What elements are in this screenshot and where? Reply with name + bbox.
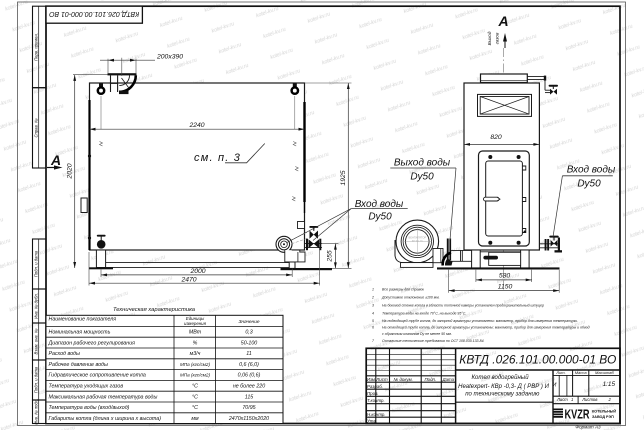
svg-text:%: % xyxy=(193,340,198,346)
svg-text:Изм.: Изм. xyxy=(367,377,376,382)
svg-text:м3/ч: м3/ч xyxy=(190,351,201,357)
svg-text:Диапазон рабочего регулировани: Диапазон рабочего регулирования xyxy=(48,340,136,346)
svg-text:КВТД .026.101.00.000-01 ВО: КВТД .026.101.00.000-01 ВО xyxy=(459,353,616,367)
svg-text:Масштаб: Масштаб xyxy=(595,370,614,375)
svg-text:Дата: Дата xyxy=(442,377,455,382)
svg-text:А: А xyxy=(497,13,508,29)
svg-text:1: 1 xyxy=(372,288,374,292)
svg-text:ВР 80-75: ВР 80-75 xyxy=(412,239,423,243)
svg-text:1: 1 xyxy=(571,397,573,402)
svg-text:4: 4 xyxy=(372,312,374,316)
svg-text:KVZR: KVZR xyxy=(565,407,590,422)
svg-text:°С: °С xyxy=(192,405,198,411)
svg-text:0,6 (6,0): 0,6 (6,0) xyxy=(239,362,259,368)
svg-text:Dy50: Dy50 xyxy=(410,172,434,183)
svg-text:255: 255 xyxy=(327,250,334,263)
svg-text:Вход воды: Вход воды xyxy=(567,165,616,176)
svg-text:50-100: 50-100 xyxy=(241,340,258,346)
svg-text:820: 820 xyxy=(490,134,502,141)
svg-text:Лит.: Лит. xyxy=(555,370,565,375)
svg-text:Все размеры для справок: Все размеры для справок xyxy=(382,288,424,292)
svg-text:КВТД.026.101.00.000-01 ВО: КВТД.026.101.00.000-01 ВО xyxy=(49,10,139,19)
svg-text:Допустимое отклонение ±100 мм: Допустимое отклонение ±100 мм. xyxy=(381,295,440,299)
svg-text:см. п. 3: см. п. 3 xyxy=(194,152,241,164)
svg-text:ЗАВОД РЭП: ЗАВОД РЭП xyxy=(592,415,614,419)
svg-text:Значение: Значение xyxy=(238,319,259,325)
svg-text:2470х1150х2020: 2470х1150х2020 xyxy=(228,416,269,422)
svg-text:Пров.: Пров. xyxy=(367,391,379,396)
svg-text:газов: газов xyxy=(495,32,500,44)
svg-text:115: 115 xyxy=(245,394,253,400)
svg-text:МПа (кгс/см2): МПа (кгс/см2) xyxy=(180,362,210,367)
svg-text:°С: °С xyxy=(192,394,198,400)
svg-text:1150: 1150 xyxy=(498,283,513,290)
svg-text:Т.контр.: Т.контр. xyxy=(367,398,385,403)
svg-text:Температура воды на входе 70°: Температура воды на входе 70°С, на выход… xyxy=(382,312,466,316)
svg-text:580: 580 xyxy=(499,273,511,280)
svg-text:1:15: 1:15 xyxy=(603,381,616,388)
svg-text:Взам. инв. №: Взам. инв. № xyxy=(33,328,38,354)
svg-text:2470: 2470 xyxy=(180,276,196,283)
svg-text:Формат А3: Формат А3 xyxy=(575,425,601,430)
svg-text:№ докум.: № докум. xyxy=(394,377,413,382)
svg-text:Номинальная мощность: Номинальная мощность xyxy=(49,330,111,336)
svg-text:КОТЕЛЬНЫЙ: КОТЕЛЬНЫЙ xyxy=(592,410,616,414)
svg-text:0,06 (0,6): 0,06 (0,6) xyxy=(238,373,261,379)
svg-text:70/95: 70/95 xyxy=(242,405,255,411)
svg-text:Разраб.: Разраб. xyxy=(367,384,383,389)
svg-text:Гидравлическое сопротивление к: Гидравлическое сопротивление котла xyxy=(49,373,146,379)
svg-text:Выход воды: Выход воды xyxy=(394,158,451,169)
svg-text:измерения: измерения xyxy=(184,321,207,326)
svg-text:Наименование показателя: Наименование показателя xyxy=(49,317,117,323)
svg-text:Техническая характеристика: Техническая характеристика xyxy=(113,307,196,313)
svg-text:Подп. и дата: Подп. и дата xyxy=(33,366,38,393)
svg-text:На боковой стенке котла в обла: На боковой стенке котла в области топочн… xyxy=(382,304,544,308)
svg-text:с обратным клапаном Dу не мен: с обратным клапаном Dу не менее 50 мм. xyxy=(382,332,452,336)
svg-text:Масса: Масса xyxy=(575,370,588,375)
svg-text:Dy50: Dy50 xyxy=(577,179,601,190)
svg-text:Лист: Лист xyxy=(375,377,388,382)
svg-text:200х390: 200х390 xyxy=(156,54,183,61)
svg-text:Справ. №: Справ. № xyxy=(33,118,38,137)
svg-text:Рабочее давление воды: Рабочее давление воды xyxy=(49,362,108,368)
svg-text:Котел водогрейный: Котел водогрейный xyxy=(471,374,529,381)
svg-text:Подп.: Подп. xyxy=(425,377,437,382)
svg-text:Инв. № дубл.: Инв. № дубл. xyxy=(33,293,38,319)
svg-text:по техническому заданию: по техническому заданию xyxy=(465,392,540,398)
svg-text:МВт: МВт xyxy=(189,330,202,336)
svg-text:На подводящей трубе котла, до: На подводящей трубе котла, до запорной а… xyxy=(382,319,578,323)
svg-text:Температура воды (вход/выход): Температура воды (вход/выход) xyxy=(49,405,130,411)
svg-text:0,3: 0,3 xyxy=(245,330,252,336)
svg-text:5: 5 xyxy=(372,319,374,323)
svg-text:3: 3 xyxy=(372,304,374,308)
svg-text:Н.контр.: Н.контр. xyxy=(367,412,386,417)
svg-text:Heatexpert- КВр -0,3- Д ( РВР: Heatexpert- КВр -0,3- Д ( РВР ) И xyxy=(458,384,549,390)
svg-text:Остальные технические требован: Остальные технические требования по ОСТ … xyxy=(382,339,485,343)
svg-text:мм: мм xyxy=(191,416,199,422)
svg-text:Инв. № подл.: Инв. № подл. xyxy=(33,399,38,425)
svg-text:Максимальная рабочая температу: Максимальная рабочая температура воды xyxy=(49,394,158,400)
svg-text:2020: 2020 xyxy=(67,163,74,179)
svg-text:1925: 1925 xyxy=(340,170,347,185)
svg-text:МПа (кгс/см2): МПа (кгс/см2) xyxy=(180,373,210,378)
svg-text:°С: °С xyxy=(192,384,198,390)
svg-text:На отводящей трубе котла, до з: На отводящей трубе котла, до запорной ар… xyxy=(382,326,590,330)
svg-text:Расход воды: Расход воды xyxy=(49,351,80,357)
svg-text:2: 2 xyxy=(371,295,374,299)
svg-text:Выход: Выход xyxy=(487,31,492,45)
svg-text:Подп. и дата: Подп. и дата xyxy=(33,250,38,277)
svg-text:Перв. примен.: Перв. примен. xyxy=(33,33,38,61)
svg-text:Утв.: Утв. xyxy=(367,419,377,424)
svg-text:А: А xyxy=(50,152,61,168)
svg-text:не более 220: не более 220 xyxy=(233,384,265,390)
svg-text:Лист: Лист xyxy=(556,397,568,402)
svg-text:6: 6 xyxy=(372,326,374,330)
svg-text:2000: 2000 xyxy=(189,268,205,275)
svg-text:11: 11 xyxy=(246,351,252,357)
svg-text:Листов: Листов xyxy=(581,397,598,402)
svg-text:Dy50: Dy50 xyxy=(368,212,392,223)
svg-text:И: И xyxy=(552,382,556,388)
svg-text:2240: 2240 xyxy=(188,122,204,129)
svg-text:Температура уходящих газов: Температура уходящих газов xyxy=(49,384,124,390)
svg-text:Габариты котла (длина х ширина: Габариты котла (длина х ширина х высота) xyxy=(49,416,162,422)
